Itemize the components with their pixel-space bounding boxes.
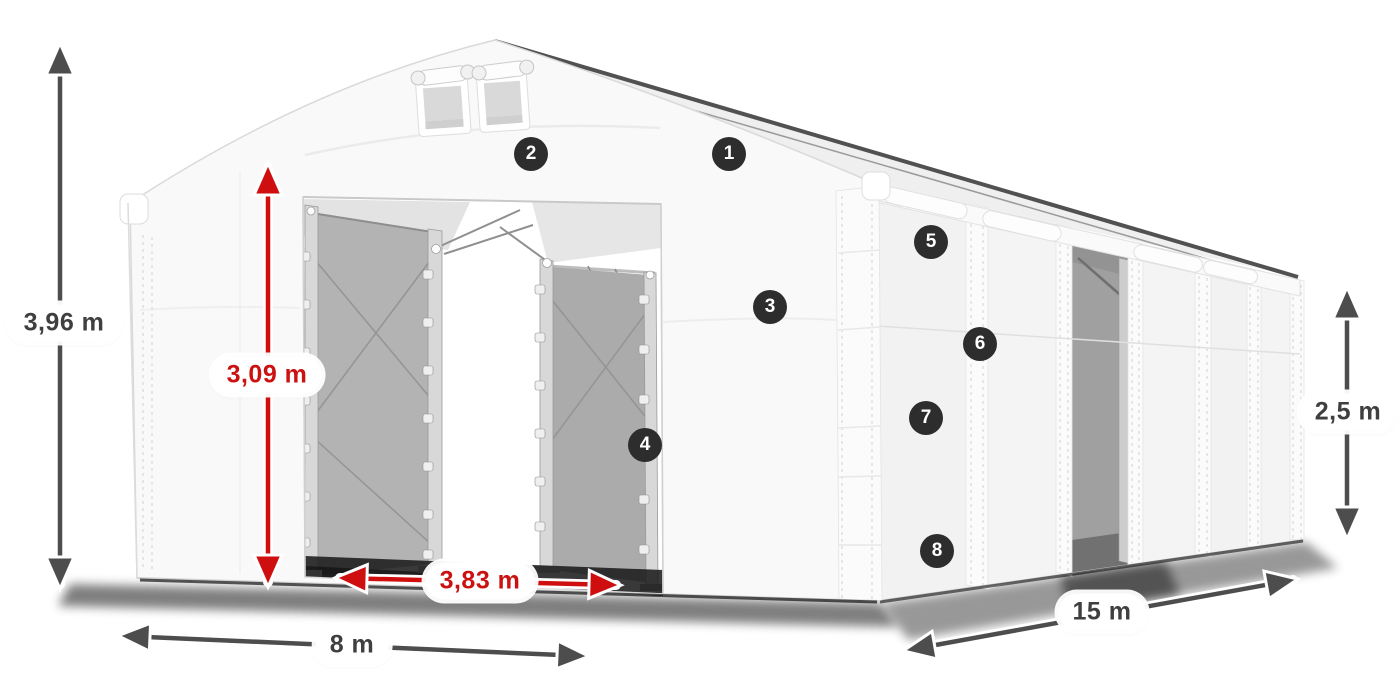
callout-8: 8	[920, 534, 954, 568]
callout-6: 6	[963, 327, 997, 361]
callout-5: 5	[914, 225, 948, 259]
callout-2: 2	[514, 137, 548, 171]
callout-4: 4	[628, 428, 662, 462]
callout-3: 3	[753, 290, 787, 324]
dimension-label-side-length: 15 m	[1059, 594, 1146, 631]
side-door-opening	[1072, 244, 1128, 576]
callout-1: 1	[712, 137, 746, 171]
corner-band	[836, 186, 882, 601]
callout-7: 7	[909, 401, 943, 435]
dimension-label-door-height: 3,09 m	[213, 357, 322, 394]
tent-illustration	[0, 0, 1400, 700]
dimension-label-total-height: 3,96 m	[10, 305, 119, 342]
dimension-label-side-height: 2,5 m	[1301, 394, 1395, 431]
dimension-label-door-width: 3,83 m	[426, 563, 535, 600]
eave-corner-left	[120, 194, 148, 224]
dimension-label-front-width: 8 m	[316, 627, 389, 664]
eave-corner-right	[862, 172, 890, 200]
tent-diagram: 3,96 m 3,09 m 3,83 m 8 m 15 m 2,5 m 1 2 …	[0, 0, 1400, 700]
gable-window-right	[476, 71, 530, 132]
front-door-interior	[300, 197, 666, 596]
